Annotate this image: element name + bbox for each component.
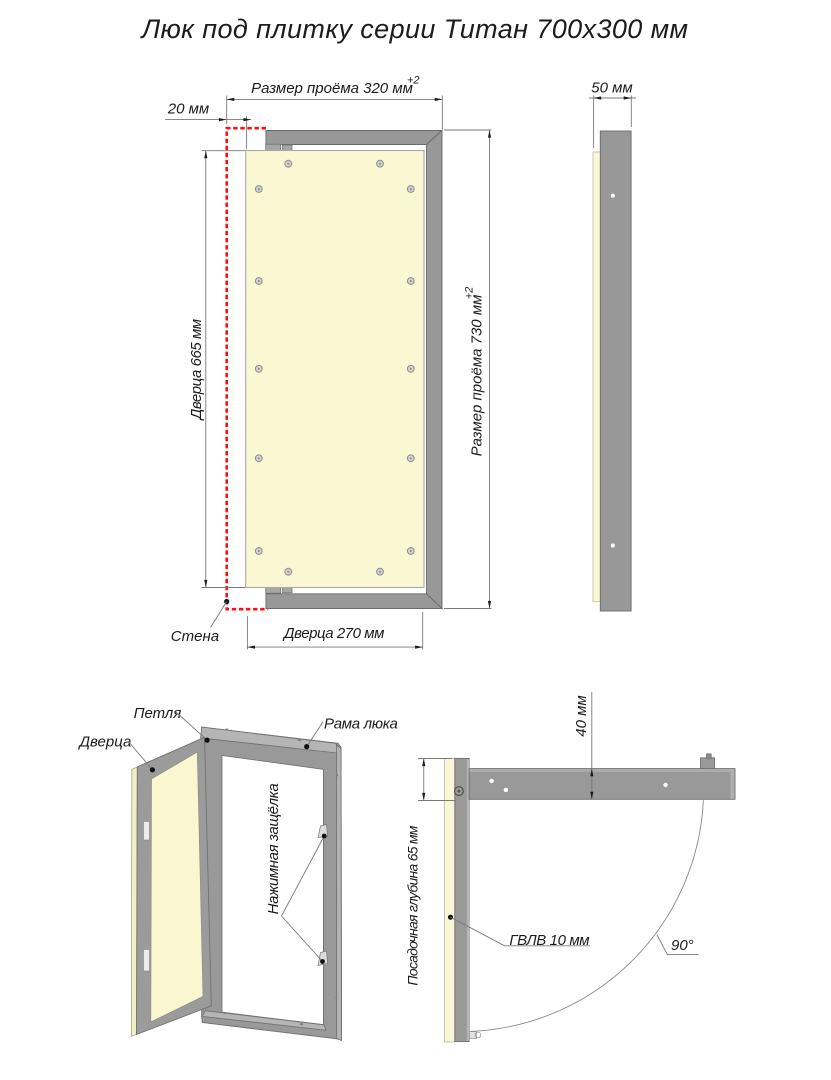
- svg-text:20 мм: 20 мм: [167, 101, 209, 118]
- svg-text:Рама люка: Рама люка: [324, 716, 398, 733]
- svg-text:ГВЛВ 10 мм: ГВЛВ 10 мм: [509, 932, 589, 949]
- svg-text:Размер проёма 320 мм: Размер проёма 320 мм: [251, 80, 413, 97]
- svg-text:Дверца 270 мм: Дверца 270 мм: [282, 625, 384, 642]
- svg-text:Дверца 665 мм: Дверца 665 мм: [188, 319, 205, 421]
- svg-text:+2: +2: [464, 287, 476, 300]
- svg-text:Посадочная глубина 65 мм: Посадочная глубина 65 мм: [405, 825, 421, 985]
- svg-text:50 мм: 50 мм: [591, 80, 632, 97]
- svg-text:Люк под плитку серии Титан 700: Люк под плитку серии Титан 700х300 мм: [140, 14, 689, 44]
- svg-text:Размер проёма 730 мм: Размер проёма 730 мм: [469, 295, 486, 457]
- svg-text:Стена: Стена: [171, 628, 219, 645]
- svg-text:Петля: Петля: [134, 705, 182, 722]
- svg-text:90°: 90°: [671, 937, 694, 954]
- svg-text:40 мм: 40 мм: [573, 695, 590, 736]
- svg-text:Нажимная защёлка: Нажимная защёлка: [265, 784, 282, 915]
- svg-text:+2: +2: [407, 75, 420, 87]
- svg-text:Дверца: Дверца: [78, 734, 132, 751]
